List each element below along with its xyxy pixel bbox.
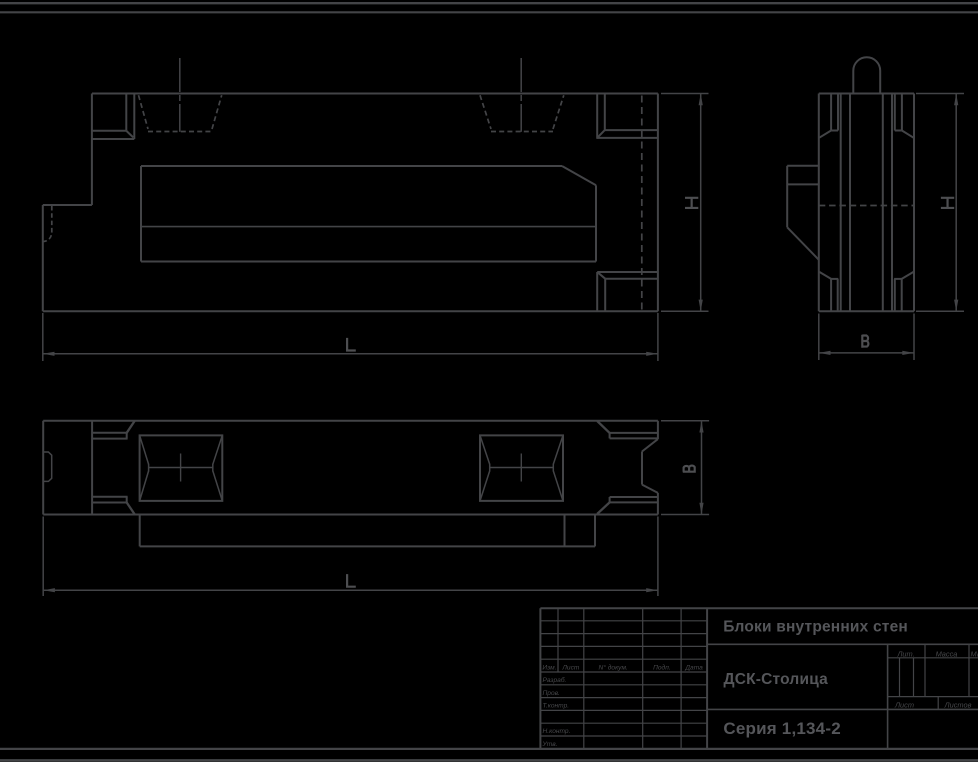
svg-text:Лит.: Лит. <box>896 649 914 658</box>
svg-text:Дата: Дата <box>684 664 703 671</box>
svg-text:Блоки внутренних стен: Блоки внутренних стен <box>723 619 908 636</box>
svg-text:Лист: Лист <box>561 664 579 671</box>
svg-text:Н.контр.: Н.контр. <box>543 728 571 735</box>
svg-text:Лист: Лист <box>894 701 914 710</box>
svg-text:Утв.: Утв. <box>542 741 558 748</box>
svg-text:Пров.: Пров. <box>543 690 561 697</box>
svg-text:ДСК-Столица: ДСК-Столица <box>724 671 829 688</box>
svg-text:Подп.: Подп. <box>653 663 671 671</box>
svg-text:Т.контр.: Т.контр. <box>543 703 570 710</box>
svg-text:Разраб.: Разраб. <box>543 676 567 684</box>
svg-text:Листов: Листов <box>944 701 972 710</box>
svg-text:Масштаб: Масштаб <box>971 649 978 658</box>
svg-text:Серия 1,134-2: Серия 1,134-2 <box>723 719 840 738</box>
svg-text:Масса: Масса <box>936 649 958 658</box>
svg-text:N° докум.: N° докум. <box>599 663 628 671</box>
svg-text:Изм.: Изм. <box>542 664 556 671</box>
